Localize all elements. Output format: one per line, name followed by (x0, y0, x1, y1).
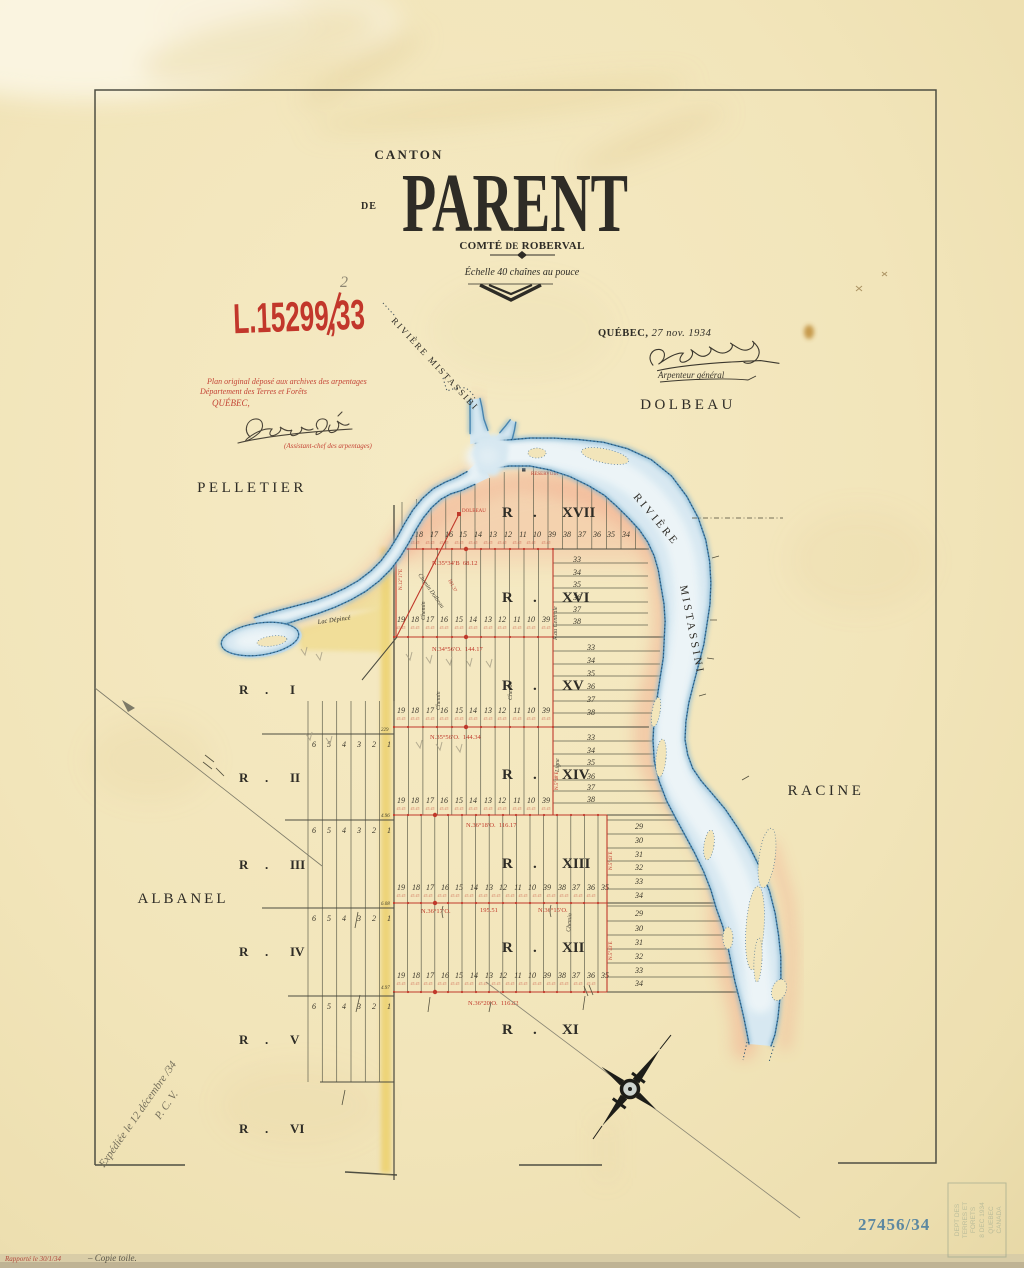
svg-text:45.45: 45.45 (479, 893, 488, 898)
svg-text:45.45: 45.45 (440, 716, 449, 721)
svg-text:34: 34 (634, 979, 643, 988)
svg-text:DE: DE (361, 201, 377, 212)
svg-text:39: 39 (542, 883, 551, 892)
svg-text:45.45: 45.45 (574, 981, 583, 986)
svg-text:6: 6 (312, 914, 316, 923)
svg-text:36: 36 (592, 530, 601, 539)
svg-text:15: 15 (455, 883, 463, 892)
svg-text:18: 18 (411, 615, 419, 624)
svg-text:45.45: 45.45 (484, 625, 493, 630)
svg-text:29: 29 (635, 909, 643, 918)
svg-text:11: 11 (513, 706, 520, 715)
svg-text:Échelle 40 chaînes au pouce: Échelle 40 chaînes au pouce (464, 266, 580, 278)
svg-text:30: 30 (634, 924, 643, 933)
svg-text:.: . (533, 767, 537, 783)
svg-text:45.45: 45.45 (411, 716, 420, 721)
svg-text:27456/34: 27456/34 (858, 1215, 930, 1234)
svg-text:45.45: 45.45 (469, 806, 478, 811)
svg-text:45.45: 45.45 (542, 625, 551, 630)
svg-text:14: 14 (469, 796, 477, 805)
svg-text:Département des Terres et Forê: Département des Terres et Forêts (199, 387, 307, 396)
svg-text:ALBANEL: ALBANEL (138, 891, 229, 907)
svg-text:10: 10 (533, 530, 541, 539)
svg-text:45.45: 45.45 (469, 625, 478, 630)
svg-text:RACINE: RACINE (788, 783, 865, 799)
svg-text:2: 2 (340, 274, 348, 291)
svg-text:N.5°43′E: N.5°43′E (609, 941, 614, 960)
svg-text:45.45: 45.45 (574, 893, 583, 898)
svg-text:45.45: 45.45 (587, 981, 596, 986)
svg-text:2: 2 (372, 914, 376, 923)
svg-text:33: 33 (634, 877, 643, 886)
svg-text:.: . (265, 770, 268, 785)
svg-text:.: . (533, 856, 537, 872)
svg-text:38: 38 (586, 795, 595, 804)
svg-text:17: 17 (426, 971, 435, 980)
svg-text:Ligne: Ligne (555, 758, 561, 773)
svg-text:35: 35 (572, 580, 581, 589)
svg-text:.: . (265, 944, 268, 959)
svg-text:5: 5 (327, 1002, 331, 1011)
svg-text:34: 34 (572, 568, 581, 577)
svg-text:4.97: 4.97 (381, 986, 390, 991)
svg-text:12: 12 (504, 530, 512, 539)
svg-text:45.45: 45.45 (411, 625, 420, 630)
svg-text:45.45: 45.45 (587, 893, 596, 898)
svg-text:R.au Centrale: R.au Centrale (553, 606, 559, 641)
svg-text:1: 1 (387, 1002, 391, 1011)
svg-text:5: 5 (327, 826, 331, 835)
svg-text:17: 17 (426, 706, 435, 715)
svg-text:15: 15 (455, 615, 463, 624)
svg-text:R: R (502, 1022, 513, 1038)
svg-text:45.45: 45.45 (438, 893, 447, 898)
svg-text:1: 1 (387, 740, 391, 749)
svg-text:38: 38 (562, 530, 571, 539)
svg-text:Arpenteur général: Arpenteur général (657, 370, 725, 380)
svg-text:2: 2 (372, 826, 376, 835)
svg-text:45.45: 45.45 (424, 893, 433, 898)
svg-text:45.45: 45.45 (397, 625, 406, 630)
svg-text:11: 11 (514, 971, 521, 980)
svg-text:15: 15 (455, 706, 463, 715)
svg-text:12: 12 (499, 971, 507, 980)
svg-text:14: 14 (469, 706, 477, 715)
svg-text:4: 4 (342, 826, 346, 835)
svg-text:XIII: XIII (562, 856, 591, 872)
svg-text:45.45: 45.45 (469, 540, 478, 545)
svg-text:45.45: 45.45 (533, 893, 542, 898)
svg-text:Chemin: Chemin (421, 601, 427, 620)
svg-text:45.45: 45.45 (484, 540, 493, 545)
svg-text:37: 37 (572, 605, 582, 614)
svg-text:45.45: 45.45 (479, 981, 488, 986)
svg-text:45.45: 45.45 (527, 625, 536, 630)
svg-text:2: 2 (372, 1002, 376, 1011)
svg-text:33: 33 (586, 733, 595, 742)
svg-text:19: 19 (397, 883, 405, 892)
svg-text:6.08: 6.08 (381, 902, 390, 907)
svg-text:.: . (265, 1121, 268, 1136)
svg-text:Plan original déposé aux archi: Plan original déposé aux archives des ar… (206, 377, 367, 386)
svg-text:1: 1 (387, 826, 391, 835)
svg-text:45.45: 45.45 (451, 981, 460, 986)
svg-text:45.45: 45.45 (484, 806, 493, 811)
svg-text:N.5°43′E: N.5°43′E (609, 851, 614, 870)
svg-text:35: 35 (606, 530, 615, 539)
svg-text:45.45: 45.45 (492, 893, 501, 898)
svg-text:38: 38 (557, 971, 566, 980)
svg-text:XVII: XVII (562, 505, 596, 521)
svg-text:16: 16 (440, 615, 448, 624)
svg-text:.: . (265, 857, 268, 872)
svg-text:XVI: XVI (562, 590, 590, 606)
svg-text:10: 10 (528, 971, 536, 980)
svg-text:45.45: 45.45 (506, 893, 515, 898)
svg-text:N.35°34′B 68.12: N.35°34′B 68.12 (432, 560, 478, 567)
svg-text:XIV: XIV (562, 767, 590, 783)
svg-text:4.96: 4.96 (381, 814, 390, 819)
svg-text:17: 17 (426, 615, 435, 624)
svg-text:16: 16 (441, 971, 449, 980)
svg-text:45.45: 45.45 (527, 540, 536, 545)
svg-text:45.45: 45.45 (426, 716, 435, 721)
svg-text:19: 19 (397, 796, 405, 805)
svg-text:45.45: 45.45 (397, 893, 406, 898)
svg-text:13: 13 (489, 530, 497, 539)
svg-text:229: 229 (381, 728, 389, 733)
svg-text:35: 35 (586, 669, 595, 678)
svg-text:3: 3 (356, 740, 361, 749)
svg-text:COMTÉ DE ROBERVAL: COMTÉ DE ROBERVAL (459, 240, 584, 252)
svg-text:45.45: 45.45 (438, 981, 447, 986)
svg-text:45.45: 45.45 (498, 716, 507, 721)
svg-text:31: 31 (634, 938, 643, 947)
svg-text:45.45: 45.45 (542, 806, 551, 811)
svg-text:CANADA: CANADA (996, 1206, 1003, 1234)
svg-text:45.45: 45.45 (519, 893, 528, 898)
svg-text:17: 17 (426, 883, 435, 892)
svg-text:N.36°17′O.: N.36°17′O. (421, 908, 451, 915)
svg-text:12: 12 (498, 706, 506, 715)
svg-text:13: 13 (485, 883, 493, 892)
svg-text:12: 12 (498, 796, 506, 805)
svg-text:DOLBEAU: DOLBEAU (640, 397, 735, 413)
svg-text:IV: IV (290, 944, 305, 959)
svg-text:14: 14 (474, 530, 482, 539)
svg-text:45.45: 45.45 (547, 981, 556, 986)
svg-text:III: III (290, 857, 305, 872)
svg-text:10: 10 (527, 796, 535, 805)
svg-text:I: I (290, 682, 295, 697)
svg-text:6: 6 (312, 740, 316, 749)
svg-text:39: 39 (542, 971, 551, 980)
svg-text:4: 4 (342, 914, 346, 923)
svg-text:195.51: 195.51 (480, 907, 498, 914)
svg-text:16: 16 (440, 796, 448, 805)
svg-text:11: 11 (513, 796, 520, 805)
svg-text:45.45: 45.45 (451, 893, 460, 898)
svg-text:16: 16 (445, 530, 453, 539)
svg-text:45.45: 45.45 (411, 806, 420, 811)
svg-text:45.45: 45.45 (513, 625, 522, 630)
svg-text:45.45: 45.45 (426, 540, 435, 545)
svg-text:45.45: 45.45 (455, 540, 464, 545)
svg-text:R: R (239, 1121, 249, 1136)
svg-text:45.45: 45.45 (533, 981, 542, 986)
svg-text:.: . (533, 678, 537, 694)
svg-text:13: 13 (484, 796, 492, 805)
svg-text:32: 32 (634, 952, 643, 961)
svg-text:.: . (265, 1032, 268, 1047)
svg-text:R: R (239, 770, 249, 785)
svg-text:32: 32 (634, 863, 643, 872)
svg-text:R: R (239, 1032, 249, 1047)
svg-text:12: 12 (499, 883, 507, 892)
svg-text:45.45: 45.45 (513, 540, 522, 545)
svg-text:R: R (502, 678, 513, 694)
svg-text:45.45: 45.45 (513, 806, 522, 811)
svg-text:R: R (239, 857, 249, 872)
svg-text:11: 11 (519, 530, 526, 539)
svg-text:– Copie toile.: – Copie toile. (87, 1253, 137, 1263)
svg-text:VI: VI (290, 1121, 304, 1136)
svg-text:XI: XI (562, 1022, 579, 1038)
svg-text:QUEBEC: QUEBEC (988, 1206, 995, 1234)
svg-text:39: 39 (541, 706, 550, 715)
svg-text:N.36°18′O. 116.17: N.36°18′O. 116.17 (466, 822, 517, 829)
svg-text:45.45: 45.45 (411, 981, 420, 986)
svg-text:33: 33 (586, 643, 595, 652)
svg-text:L.15299,33: L.15299,33 (232, 291, 365, 342)
svg-text:45.45: 45.45 (527, 716, 536, 721)
svg-text:33: 33 (572, 555, 581, 564)
svg-text:45.45: 45.45 (455, 716, 464, 721)
svg-text:45.45: 45.45 (465, 893, 474, 898)
svg-text:R: R (502, 856, 513, 872)
svg-text:45.45: 45.45 (455, 625, 464, 630)
svg-text:36: 36 (586, 883, 595, 892)
svg-text:39: 39 (547, 530, 556, 539)
svg-text:PELLETIER: PELLETIER (197, 480, 307, 496)
svg-text:45.45: 45.45 (542, 540, 551, 545)
svg-text:.: . (533, 1022, 537, 1038)
svg-text:45.45: 45.45 (424, 981, 433, 986)
svg-text:38: 38 (557, 883, 566, 892)
svg-text:DEPT DES: DEPT DES (954, 1203, 961, 1236)
svg-text:34: 34 (634, 891, 643, 900)
svg-text:37: 37 (586, 783, 596, 792)
svg-text:39: 39 (541, 796, 550, 805)
svg-text:.: . (533, 940, 537, 956)
svg-text:.: . (265, 682, 268, 697)
svg-text:12: 12 (498, 615, 506, 624)
svg-text:.: . (533, 590, 537, 606)
svg-text:N.35°56′O. 144.34: N.35°56′O. 144.34 (430, 734, 482, 741)
svg-text:45.45: 45.45 (440, 806, 449, 811)
svg-text:45.45: 45.45 (560, 893, 569, 898)
svg-text:35: 35 (600, 883, 609, 892)
svg-text:45.45: 45.45 (498, 540, 507, 545)
svg-text:35: 35 (586, 758, 595, 767)
svg-text:XII: XII (562, 940, 585, 956)
svg-text:19: 19 (397, 615, 405, 624)
svg-text:8 DEC 1934: 8 DEC 1934 (979, 1202, 986, 1238)
svg-text:45.45: 45.45 (519, 981, 528, 986)
svg-text:45.45: 45.45 (397, 806, 406, 811)
svg-text:33: 33 (634, 966, 643, 975)
svg-text:17: 17 (426, 796, 435, 805)
svg-text:TERRES ET: TERRES ET (962, 1202, 969, 1239)
svg-text:6: 6 (312, 1002, 316, 1011)
svg-text:13: 13 (484, 615, 492, 624)
svg-text:45.45: 45.45 (440, 625, 449, 630)
svg-text:18: 18 (412, 971, 420, 980)
svg-text:R: R (239, 944, 249, 959)
svg-text:45.45: 45.45 (484, 716, 493, 721)
svg-text:35: 35 (600, 971, 609, 980)
svg-text:Chemin: Chemin (436, 691, 442, 710)
svg-text:45.45: 45.45 (469, 716, 478, 721)
svg-text:37: 37 (577, 530, 587, 539)
svg-text:15: 15 (459, 530, 467, 539)
svg-text:QUÉBEC,: QUÉBEC, (212, 398, 250, 408)
svg-text:34: 34 (586, 656, 595, 665)
svg-text:II: II (290, 770, 300, 785)
svg-text:39: 39 (541, 615, 550, 624)
svg-text:16: 16 (441, 883, 449, 892)
svg-text:3: 3 (356, 826, 361, 835)
svg-text:18: 18 (411, 796, 419, 805)
svg-text:18: 18 (412, 883, 420, 892)
svg-text:36: 36 (586, 682, 595, 691)
svg-text:R: R (502, 505, 513, 521)
svg-text:FORETS: FORETS (970, 1206, 977, 1233)
svg-text:15: 15 (455, 796, 463, 805)
svg-text:5: 5 (327, 914, 331, 923)
svg-text:10: 10 (527, 615, 535, 624)
svg-text:14: 14 (470, 883, 478, 892)
svg-text:11: 11 (513, 615, 520, 624)
svg-text:R: R (502, 590, 513, 606)
svg-text:V: V (290, 1032, 300, 1047)
svg-text:14: 14 (470, 971, 478, 980)
svg-text:14: 14 (469, 615, 477, 624)
svg-text:10: 10 (527, 706, 535, 715)
svg-text:45.45: 45.45 (465, 981, 474, 986)
svg-text:36: 36 (586, 971, 595, 980)
svg-text:N.12°17′E: N.12°17′E (399, 569, 404, 590)
svg-text:10: 10 (528, 883, 536, 892)
svg-text:45.45: 45.45 (455, 806, 464, 811)
svg-text:37: 37 (571, 971, 581, 980)
svg-text:45.45: 45.45 (426, 806, 435, 811)
svg-text:13: 13 (484, 706, 492, 715)
svg-text:R: R (502, 940, 513, 956)
svg-text:11: 11 (514, 883, 521, 892)
svg-text:R: R (502, 767, 513, 783)
svg-text:38: 38 (572, 617, 581, 626)
svg-text:13: 13 (485, 971, 493, 980)
svg-text:45.45: 45.45 (506, 981, 515, 986)
svg-text:4: 4 (342, 1002, 346, 1011)
svg-text:2: 2 (372, 740, 376, 749)
svg-text:31: 31 (634, 850, 643, 859)
svg-text:37: 37 (571, 883, 581, 892)
svg-text:45.45: 45.45 (492, 981, 501, 986)
svg-text:45.45: 45.45 (426, 625, 435, 630)
svg-text:38: 38 (586, 708, 595, 717)
svg-text:45.45: 45.45 (397, 981, 406, 986)
svg-text:19: 19 (397, 706, 405, 715)
svg-text:45.45: 45.45 (498, 625, 507, 630)
svg-text:29: 29 (635, 822, 643, 831)
svg-text:DOLBEAU: DOLBEAU (462, 509, 486, 514)
svg-text:Rapporté le 30/1/34: Rapporté le 30/1/34 (4, 1255, 61, 1263)
svg-text:N.5°48′E: N.5°48′E (555, 771, 560, 790)
svg-text:45.45: 45.45 (542, 716, 551, 721)
svg-text:6: 6 (312, 826, 316, 835)
svg-text:37: 37 (586, 695, 596, 704)
svg-text:PARENT: PARENT (402, 157, 628, 250)
svg-text:45.45: 45.45 (560, 981, 569, 986)
svg-text:34: 34 (586, 746, 595, 755)
svg-text:45.45: 45.45 (411, 893, 420, 898)
svg-text:45.45: 45.45 (513, 716, 522, 721)
svg-text:N.36°15′O.: N.36°15′O. (538, 907, 568, 914)
svg-text:34: 34 (621, 530, 630, 539)
svg-text:XV: XV (562, 678, 584, 694)
svg-text:45.45: 45.45 (527, 806, 536, 811)
svg-text:18: 18 (411, 706, 419, 715)
svg-text:19: 19 (397, 971, 405, 980)
svg-text:4: 4 (342, 740, 346, 749)
svg-text:15: 15 (455, 971, 463, 980)
svg-text:45.45: 45.45 (440, 540, 449, 545)
svg-text:45.45: 45.45 (498, 806, 507, 811)
svg-text:17: 17 (430, 530, 439, 539)
svg-text:1: 1 (387, 914, 391, 923)
svg-text:(Assistant-chef des arpentages: (Assistant-chef des arpentages) (284, 442, 373, 450)
svg-text:R: R (239, 682, 249, 697)
svg-text:45.45: 45.45 (397, 716, 406, 721)
svg-text:30: 30 (634, 836, 643, 845)
svg-text:45.45: 45.45 (547, 893, 556, 898)
svg-text:N.34°56′O. 144.17: N.34°56′O. 144.17 (432, 646, 484, 653)
svg-text:.: . (533, 505, 537, 521)
svg-text:QUÉBEC, 27 nov. 1934: QUÉBEC, 27 nov. 1934 (598, 327, 712, 339)
